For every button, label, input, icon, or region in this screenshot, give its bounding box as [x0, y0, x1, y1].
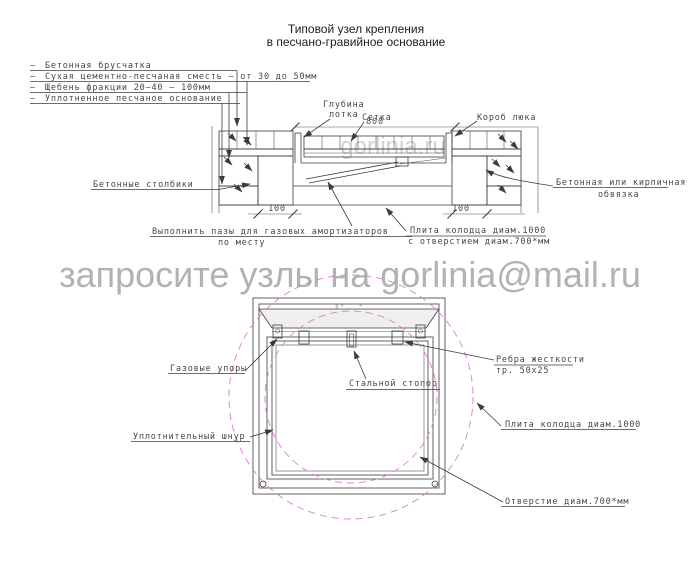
plan-view: Газовые упоры Стальной стопор Ребра жест…: [131, 275, 641, 519]
plan-opening-frames: [260, 337, 438, 487]
note-grooves-2: по месту: [218, 238, 265, 248]
page-title-line2: в песчано-гравийное основание: [267, 35, 446, 49]
label-ribs-1: Ребра жесткости: [496, 354, 585, 365]
well-slab: [219, 186, 521, 205]
legend-item-crushed-stone: Щебень фракции 20—40 — 100мм: [45, 82, 211, 93]
concrete-pillar-left: [258, 156, 293, 205]
plan-top-channel: [259, 309, 439, 332]
label-edging-2: обвязка: [598, 189, 639, 200]
label-seal-cord: Уплотнительный шнур: [133, 432, 245, 442]
concrete-pillar-right: [452, 156, 487, 205]
materials-legend: — Бетонная брусчатка — Сухая цементно-пе…: [30, 60, 317, 184]
legend-item-paving: Бетонная брусчатка: [45, 60, 152, 71]
steel-stop-tab: [347, 331, 356, 347]
note-grooves-1: Выполнить пазы для газовых амортизаторов: [152, 227, 389, 237]
label-tray-depth-1: Глубина: [323, 99, 364, 110]
label-hole: Отверстие диам.700*мм: [505, 497, 629, 507]
legend-bullet-2: —: [30, 72, 36, 82]
label-edging-1: Бетонная или кирпичная: [556, 178, 686, 188]
watermark-request: запросите узлы на gorlinia@mail.ru: [59, 254, 641, 295]
gas-strut-open: [306, 157, 446, 183]
drawing-canvas: Типовой узел крепления в песчано-гравийн…: [0, 0, 700, 561]
dimension-100-right: 100: [443, 204, 525, 219]
label-ribs-2: тр. 50х25: [496, 366, 549, 376]
legend-item-sand-base: Уплотненное песчаное основание: [45, 94, 223, 104]
plan-labels: Газовые упоры Стальной стопор Ребра жест…: [131, 339, 641, 507]
dim-pillar-left: 100: [268, 204, 286, 214]
dimension-100-left: 100: [248, 204, 302, 219]
label-mesh: Сетка: [362, 113, 392, 123]
page-title-line1: Типовой узел крепления: [288, 22, 424, 36]
rib-tab: [392, 331, 403, 344]
note-slab-2: с отверстием диам.700*мм: [408, 237, 550, 247]
ground-left: [219, 131, 293, 205]
legend-item-cement-sand-mix: Сухая цементно-песчаная сместь — от 30 д…: [45, 72, 317, 82]
legend-bullet-4: —: [30, 94, 36, 104]
dim-pillar-right: 100: [452, 204, 470, 214]
legend-bullet-1: —: [30, 61, 36, 71]
label-gas-struts: Газовые упоры: [170, 364, 247, 374]
cross-section-view: 800 100 100 Глубина лотка Сетка Короб лю…: [91, 99, 686, 248]
title: Типовой узел крепления в песчано-гравийн…: [267, 22, 446, 49]
label-concrete-pillars: Бетонные столбики: [93, 179, 194, 190]
legend-bullet-3: —: [30, 83, 36, 93]
technical-drawing-page: Типовой узел крепления в песчано-гравийн…: [0, 0, 700, 561]
label-tray-depth-2: лотка: [329, 110, 359, 120]
note-slab-1: Плита колодца диам.1000: [410, 226, 546, 236]
section-labels: Глубина лотка Сетка Короб люка Бетонные …: [91, 99, 686, 248]
label-plan-slab: Плита колодца диам.1000: [505, 420, 641, 430]
label-steel-stop: Стальной стопор: [349, 379, 438, 389]
label-hatch-box: Короб люка: [477, 112, 536, 123]
